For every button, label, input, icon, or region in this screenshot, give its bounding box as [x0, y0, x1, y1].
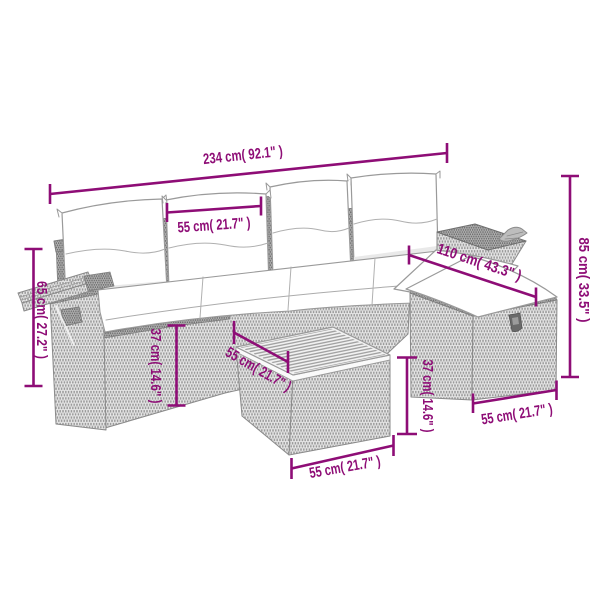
svg-text:85 cm( 33.5" ): 85 cm( 33.5" ): [575, 238, 592, 323]
svg-text:37 cm( 14.6" ): 37 cm( 14.6" ): [419, 360, 436, 433]
svg-text:37 cm( 14.6" ): 37 cm( 14.6" ): [147, 329, 164, 404]
svg-text:65 cm( 27.2" ): 65 cm( 27.2" ): [33, 281, 50, 359]
